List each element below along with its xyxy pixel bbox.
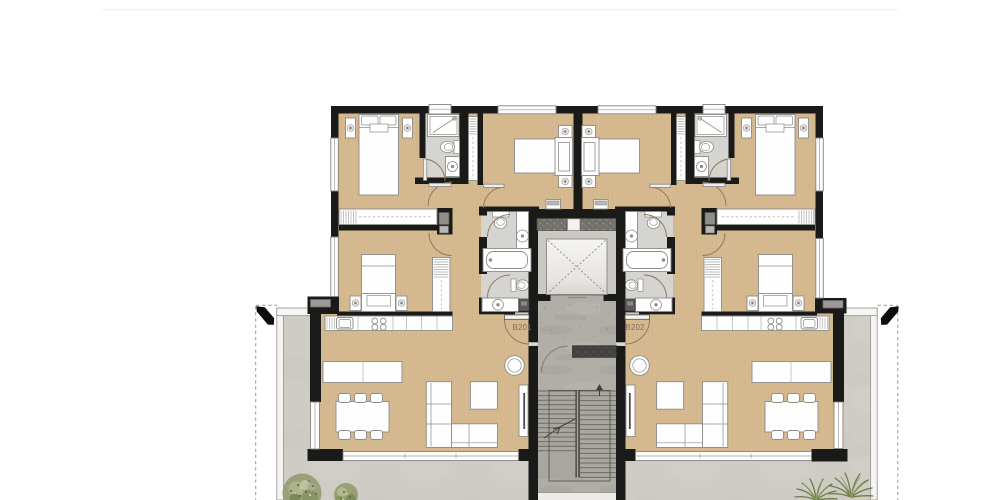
svg-text:B202: B202 [626,323,645,332]
svg-text:B201: B201 [513,323,532,332]
